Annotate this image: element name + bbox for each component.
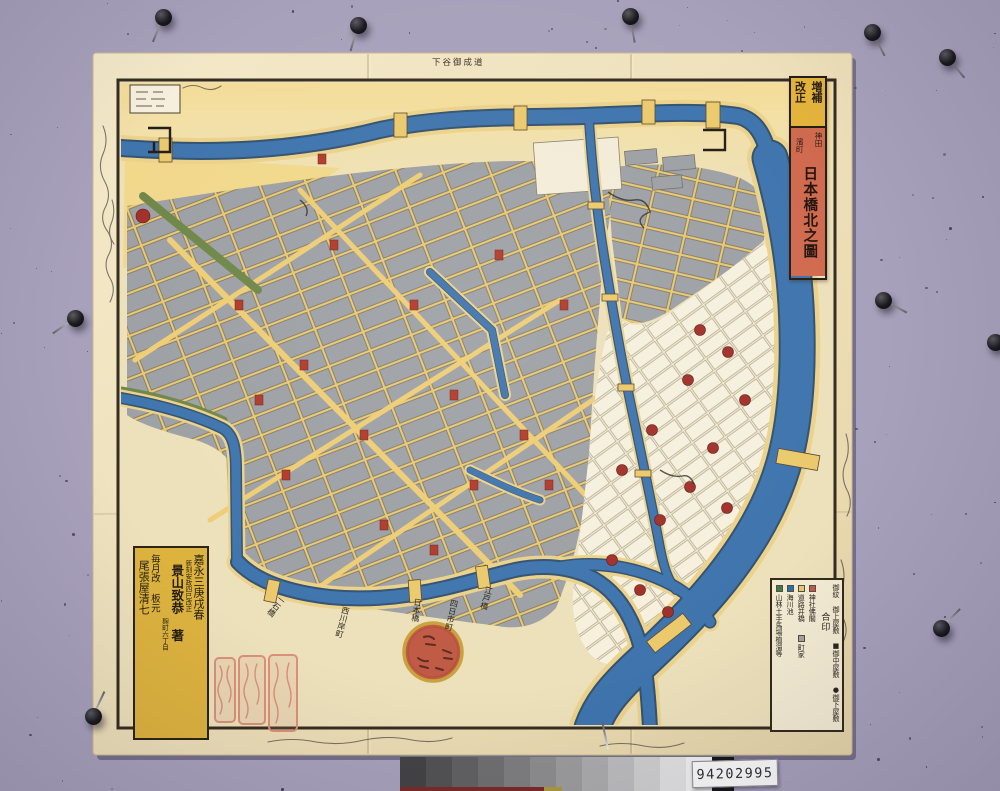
- pin-head: [85, 708, 102, 725]
- pin-head: [987, 334, 1000, 351]
- photo-stage: 増補 改正 神田 濱町 日本橋北之圖 御紋 御上屋敷 ■御中屋敷 ●御下屋敷 合…: [0, 0, 1000, 791]
- pin-needle: [601, 722, 609, 749]
- pin-head: [155, 9, 172, 26]
- pin-head: [875, 292, 892, 309]
- pin-head: [864, 24, 881, 41]
- pin-head: [933, 620, 950, 637]
- push-pin-layer: [0, 0, 1000, 791]
- pin-head: [622, 8, 639, 25]
- pin-head: [939, 49, 956, 66]
- pin-head: [350, 17, 367, 34]
- pin-head: [67, 310, 84, 327]
